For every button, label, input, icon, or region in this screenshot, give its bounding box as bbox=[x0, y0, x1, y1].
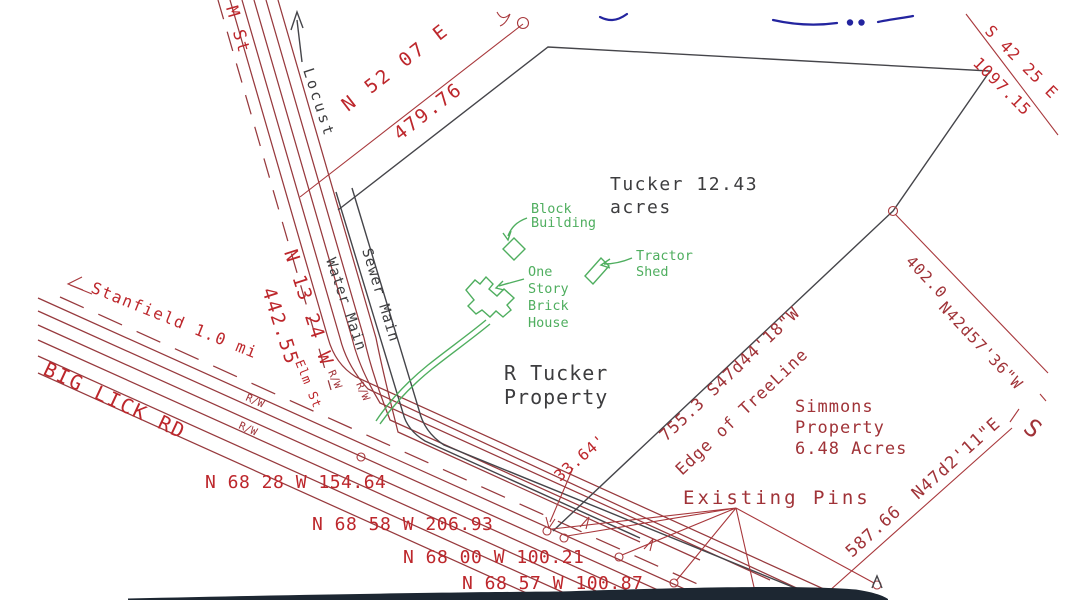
shed-label-line2: Shed bbox=[636, 264, 669, 280]
tucker-acreage-line2: acres bbox=[610, 197, 672, 218]
existing-pins-label: Existing Pins bbox=[683, 487, 871, 509]
blue-dot-2 bbox=[858, 19, 864, 25]
stanfield-direction-arrow bbox=[68, 277, 92, 294]
locust-rw-pin bbox=[518, 18, 529, 29]
corner-pin-flag bbox=[872, 576, 882, 588]
big-lick-road-lines bbox=[38, 297, 733, 600]
big-lick-line-1 bbox=[38, 298, 709, 600]
blue-squiggle-3 bbox=[878, 16, 913, 22]
blue-squiggle-1 bbox=[600, 14, 627, 20]
bearing-big-lick-4: N 68 57 W 100.87 bbox=[462, 573, 643, 594]
partial-s-label: S bbox=[1018, 413, 1047, 444]
shed-label-line1: Tractor bbox=[636, 248, 693, 264]
bearing-big-lick-3: N 68 00 W 100.21 bbox=[403, 547, 584, 568]
bearing-simmons-east: N47d2'11"E bbox=[908, 414, 1005, 504]
blue-squiggle-2 bbox=[773, 20, 837, 25]
rw-label-1: R/W bbox=[244, 392, 267, 411]
locust-direction-arrow bbox=[291, 12, 303, 62]
sewer-main-label: Sewer Main bbox=[358, 246, 402, 344]
plat-drawing: M St Locust Elm St BIG LICK RD Stanfield… bbox=[0, 0, 1069, 600]
locust-street-label: Locust bbox=[299, 66, 338, 140]
house-label-line3: Brick bbox=[528, 298, 569, 314]
bearing-simmons-north: N42d57'36"W bbox=[935, 298, 1026, 393]
big-lick-centerline-dashed bbox=[60, 297, 733, 600]
bearing-big-lick-2: N 68 58 W 206.93 bbox=[312, 514, 493, 535]
elm-street-top-label: M St bbox=[221, 4, 254, 57]
tie-distance-label: 33.64' bbox=[551, 431, 610, 485]
tucker-owner-line2: Property bbox=[504, 385, 608, 409]
blue-marks bbox=[600, 14, 913, 26]
block-building-arrow bbox=[503, 218, 527, 240]
simmons-line2: Property bbox=[795, 418, 885, 438]
brick-house-outline bbox=[466, 277, 514, 317]
stanfield-label: Stanfield 1.0 mi bbox=[89, 278, 261, 362]
top-red-squiggle bbox=[497, 12, 510, 26]
house-label-line4: House bbox=[528, 315, 569, 331]
house-label-line1: One bbox=[528, 264, 552, 280]
block-building-outline bbox=[503, 238, 525, 260]
tucker-acreage-line1: Tucker 12.43 bbox=[610, 174, 758, 195]
bearing-big-lick-1: N 68 28 W 154.64 bbox=[205, 472, 386, 493]
house-arrow bbox=[496, 279, 524, 290]
rw-label-3: R/W bbox=[325, 368, 344, 391]
distance-locust-rw: 479.76 bbox=[390, 78, 467, 145]
simmons-line1: Simmons bbox=[795, 397, 874, 417]
simmons-line3: 6.48 Acres bbox=[795, 439, 907, 459]
survey-plat-canvas: M St Locust Elm St BIG LICK RD Stanfield… bbox=[0, 0, 1069, 600]
house-label-line2: Story bbox=[528, 281, 569, 297]
tucker-owner-line1: R Tucker bbox=[504, 361, 608, 385]
block-building-label-line2: Building bbox=[531, 215, 596, 231]
pin-marker bbox=[543, 527, 551, 535]
distance-simmons-north: 402.0 bbox=[902, 252, 951, 302]
blue-dot-1 bbox=[847, 19, 853, 25]
